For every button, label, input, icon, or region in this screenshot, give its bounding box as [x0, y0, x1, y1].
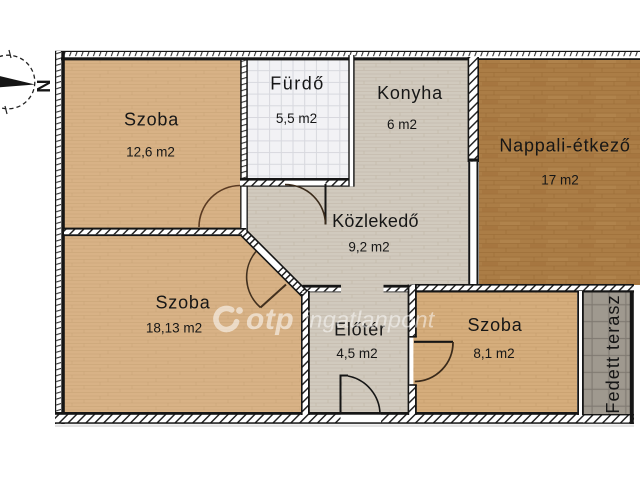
svg-text:Konyha: Konyha — [377, 83, 443, 103]
svg-text:18,13 m2: 18,13 m2 — [146, 321, 202, 336]
svg-text:Szoba: Szoba — [155, 293, 210, 313]
svg-text:5,5 m2: 5,5 m2 — [276, 111, 317, 126]
svg-text:6 m2: 6 m2 — [387, 117, 417, 132]
svg-text:Fürdő: Fürdő — [270, 74, 325, 94]
svg-text:9,2 m2: 9,2 m2 — [348, 240, 389, 255]
svg-text:Közlekedő: Közlekedő — [332, 211, 419, 231]
svg-text:ingatlanpont: ingatlanpont — [304, 307, 436, 333]
svg-text:Szoba: Szoba — [124, 110, 179, 130]
svg-text:17 m2: 17 m2 — [541, 173, 579, 188]
svg-text:12,6 m2: 12,6 m2 — [126, 145, 175, 160]
svg-text:Fedett terasz: Fedett terasz — [603, 294, 623, 413]
svg-text:Nappali-étkező: Nappali-étkező — [499, 136, 630, 156]
svg-text:8,1 m2: 8,1 m2 — [473, 346, 514, 361]
svg-text:4,5 m2: 4,5 m2 — [336, 346, 377, 361]
svg-text:otp: otp — [246, 303, 294, 336]
svg-text:Szoba: Szoba — [467, 315, 522, 335]
svg-text:N: N — [33, 79, 54, 92]
